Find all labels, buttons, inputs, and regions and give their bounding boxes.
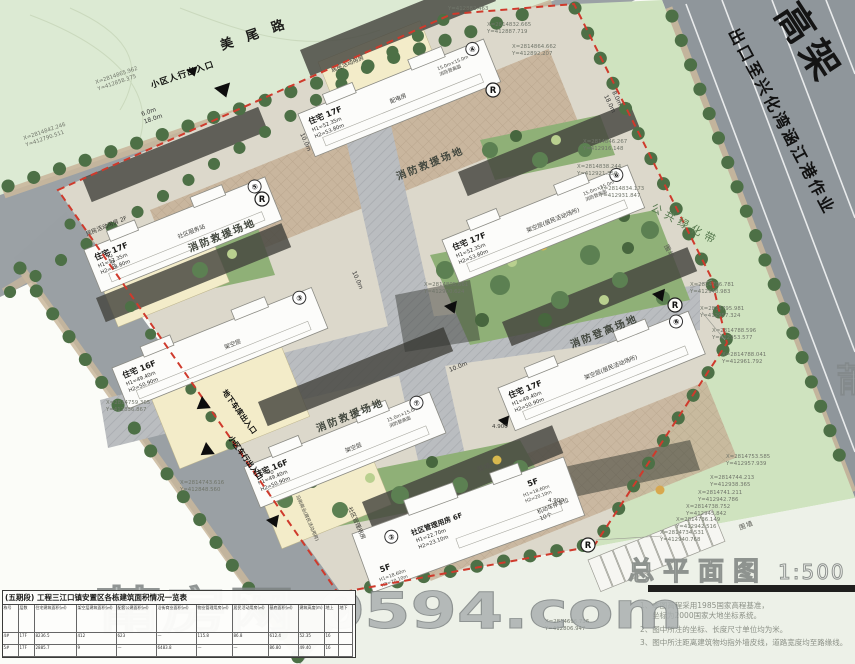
svg-text:Y=412882.463: Y=412882.463 (447, 6, 488, 12)
svg-text:Y=412948.983: Y=412948.983 (689, 289, 730, 295)
svg-text:Y=412957.939: Y=412957.939 (725, 461, 767, 467)
svg-text:Y=412942.786: Y=412942.786 (697, 497, 739, 503)
svg-text:4.900: 4.900 (492, 424, 508, 430)
svg-text:R: R (259, 195, 266, 205)
svg-text:X=2814832.665: X=2814832.665 (487, 22, 531, 28)
svg-text:Y=412836.867: Y=412836.867 (105, 407, 146, 413)
watermark-partial: 莆 (836, 361, 855, 401)
svg-text:X=2814788.041: X=2814788.041 (722, 352, 766, 358)
svg-text:R: R (585, 541, 592, 551)
svg-text:Y=412953.577: Y=412953.577 (711, 335, 752, 341)
site-plan-canvas: 住宅 17F H1=52.35m H2=53.80m 配电房 15.0m×15.… (0, 0, 855, 664)
svg-text:4.900: 4.900 (258, 470, 274, 476)
svg-text:Y=412916.148: Y=412916.148 (582, 146, 624, 152)
svg-text:Y=412931.847: Y=412931.847 (599, 193, 640, 199)
svg-text:Y=412961.792: Y=412961.792 (721, 359, 762, 365)
table-grid: 栋号 层数 住宅建筑面积(㎡) 架空层建筑面积(㎡) 配套公建面积(㎡) 沿街商… (3, 604, 355, 657)
svg-text:X=2814846.267: X=2814846.267 (583, 139, 627, 145)
svg-text:R: R (490, 86, 497, 96)
building-area-table: (五期段) 工程三江口镇安置区各栋建筑面积情况一览表 栋号 层数 住宅建筑面积(… (2, 590, 356, 658)
svg-text:X=2814805.661: X=2814805.661 (424, 282, 468, 288)
svg-text:Y=412938.365: Y=412938.365 (709, 482, 750, 488)
svg-text:X=2814738.752: X=2814738.752 (686, 504, 730, 510)
svg-text:X=2814753.585: X=2814753.585 (726, 454, 770, 460)
svg-text:Y=412892.207: Y=412892.207 (511, 51, 552, 57)
plan-scale: 1:500 (778, 560, 846, 584)
svg-text:X=2814734.531: X=2814734.531 (660, 530, 704, 536)
svg-text:X=2814796.781: X=2814796.781 (690, 282, 734, 288)
svg-text:Y=412900.624: Y=412900.624 (423, 289, 465, 295)
svg-text:X=2814736.149: X=2814736.149 (676, 517, 721, 523)
svg-text:X=2814741.211: X=2814741.211 (698, 490, 742, 496)
svg-text:R: R (672, 301, 679, 311)
svg-text:X=2814759.365: X=2814759.365 (106, 400, 150, 406)
svg-text:Y=412940.768: Y=412940.768 (659, 537, 701, 543)
svg-text:Y=412848.560: Y=412848.560 (179, 487, 221, 493)
svg-text:X=2814744.213: X=2814744.213 (710, 475, 754, 481)
svg-text:X=2814864.662: X=2814864.662 (512, 44, 556, 50)
svg-text:X=2814743.616: X=2814743.616 (180, 480, 225, 486)
svg-text:X=2814795.981: X=2814795.981 (700, 306, 744, 312)
svg-text:Y=412887.719: Y=412887.719 (486, 29, 528, 35)
svg-text:4.900: 4.900 (548, 498, 564, 504)
site-plan-drawing: 住宅 17F H1=52.35m H2=53.80m 配电房 15.0m×15.… (0, 0, 855, 664)
table-title: (五期段) 工程三江口镇安置区各栋建筑面积情况一览表 (3, 591, 355, 604)
svg-text:X=2814834.173: X=2814834.173 (600, 186, 644, 192)
svg-text:X=2814788.596: X=2814788.596 (712, 328, 757, 334)
svg-text:Y=412921.350: Y=412921.350 (576, 171, 618, 177)
svg-text:X=2814838.244: X=2814838.244 (577, 164, 622, 170)
